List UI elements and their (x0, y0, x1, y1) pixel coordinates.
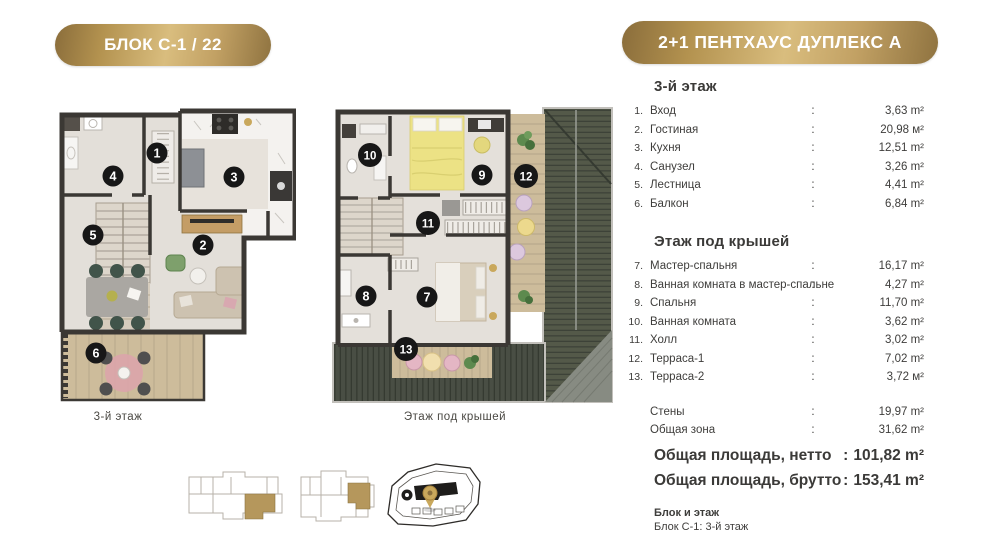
block-number-badge: БЛОК С-1 / 22 (55, 24, 271, 66)
row-number: 2. (624, 121, 650, 140)
row-value: 6,84 m² (818, 195, 924, 214)
area-row: 10.Ванная комната:3,62 m² (624, 313, 924, 332)
site-plan-thumb (378, 456, 487, 533)
row-value: 3,02 m² (818, 331, 924, 350)
room-marker: 6 (86, 343, 107, 364)
row-value: 7,02 m² (818, 350, 924, 369)
row-value: 16,17 m² (818, 257, 924, 276)
area-row: 7.Мастер-спальня:16,17 m² (624, 257, 924, 276)
row-label: Холл (650, 331, 808, 350)
row-colon: : (808, 368, 818, 387)
area-row: 5.Лестница:4,41 m² (624, 176, 924, 195)
row-label: Спальня (650, 294, 808, 313)
block-footer-value: Блок С-1: 3-й этаж (654, 520, 924, 535)
highlighted-unit (245, 494, 275, 519)
desk-chair (474, 137, 490, 153)
toilet (347, 159, 357, 173)
rack (388, 258, 418, 271)
area-row: 12.Терраса-1:7,02 m² (624, 350, 924, 369)
row-colon: : (808, 139, 818, 158)
room-marker: 13 (394, 337, 418, 361)
tv-console (182, 215, 242, 233)
row-label: Стены (650, 403, 808, 422)
floorplan-3rd-floor: 1 2 3 4 5 6 (56, 95, 296, 420)
svg-text:7: 7 (424, 291, 431, 305)
row-colon: : (808, 403, 818, 422)
row-value: 4,27 m² (818, 276, 924, 295)
row-number: 8. (624, 276, 650, 295)
row-number: 3. (624, 139, 650, 158)
sink (340, 270, 351, 296)
svg-text:4: 4 (110, 170, 117, 184)
row-colon: : (808, 313, 818, 332)
row-value: 19,97 m² (818, 403, 924, 422)
summary: Стены:19,97 m² Общая зона:31,62 m² (624, 403, 924, 440)
row-colon: : (808, 294, 818, 313)
area-row: 2.Гостиная:20,98 м² (624, 121, 924, 140)
room-marker: 11 (416, 211, 440, 235)
area-row: 3.Кухня:12,51 m² (624, 139, 924, 158)
coffee-table (190, 268, 206, 284)
total-label: Общая площадь, нетто (624, 443, 843, 469)
row-colon: : (808, 158, 818, 177)
kettle (244, 118, 252, 126)
area-info-panel: 3-й этаж 1.Вход:3,63 m² 2.Гостиная:20,98… (624, 78, 924, 535)
row-colon: : (843, 468, 853, 494)
total-net-row: Общая площадь, нетто:101,82 m² (624, 443, 924, 469)
svg-text:5: 5 (90, 229, 97, 243)
room-marker: 4 (103, 166, 124, 187)
penthouse-plan-page: БЛОК С-1 / 22 2+1 ПЕНТХАУС ДУПЛЕКС А (0, 0, 1000, 540)
block-footer-title: Блок и этаж (654, 506, 924, 521)
floorplan-attic: 7 8 9 10 11 12 13 (330, 100, 615, 405)
bath-shelf (64, 117, 80, 131)
hall-rug (442, 200, 460, 216)
balcony-table (118, 367, 130, 379)
row-label: Кухня (650, 139, 808, 158)
row-colon: : (808, 276, 818, 295)
row-value: 3,63 m² (818, 102, 924, 121)
row-number: 7. (624, 257, 650, 276)
area-row: 1.Вход:3,63 m² (624, 102, 924, 121)
lamp (489, 312, 497, 320)
bath-vanity (64, 137, 78, 169)
row-number: 10. (624, 313, 650, 332)
building-plan-thumb-2 (296, 465, 378, 527)
row-colon: : (808, 421, 818, 440)
area-row: 8.Ванная комната в мастер-спальне:4,27 m… (624, 276, 924, 295)
room-marker: 5 (83, 225, 104, 246)
row-label: Ванная комната (650, 313, 808, 332)
summary-row: Стены:19,97 m² (624, 403, 924, 422)
terrace-table (423, 353, 441, 371)
row-colon: : (808, 350, 818, 369)
room-marker: 3 (224, 167, 245, 188)
area-row: 13.Терраса-2:3,72 м² (624, 368, 924, 387)
svg-text:10: 10 (364, 151, 377, 163)
row-colon: : (808, 331, 818, 350)
svg-text:6: 6 (93, 347, 100, 361)
area-row: 9.Спальня:11,70 m² (624, 294, 924, 313)
washer (84, 117, 102, 130)
row-value: 20,98 м² (818, 121, 924, 140)
terrace-chair (444, 355, 460, 371)
svg-text:3: 3 (231, 171, 238, 185)
terrace-chair (516, 195, 532, 211)
highlighted-unit (348, 483, 370, 509)
totals: Общая площадь, нетто:101,82 m² Общая пло… (624, 443, 924, 494)
row-label: Балкон (650, 195, 808, 214)
section-title-attic: Этаж под крышей (624, 233, 924, 250)
row-colon: : (808, 257, 818, 276)
total-gross-row: Общая площадь, брутто:153,41 m² (624, 468, 924, 494)
wardrobe (463, 200, 508, 215)
area-row: 11.Холл:3,02 m² (624, 331, 924, 350)
room-marker: 12 (514, 164, 538, 188)
row-label: Мастер-спальня (650, 257, 808, 276)
row-value: 4,41 m² (818, 176, 924, 195)
total-value: 153,41 m² (853, 468, 924, 494)
row-number-spacer (624, 421, 650, 440)
terrace-chair (509, 244, 525, 260)
room-marker: 8 (356, 286, 377, 307)
row-colon: : (808, 121, 818, 140)
room-marker: 1 (147, 143, 168, 164)
area-row: 4.Санузел:3,26 m² (624, 158, 924, 177)
armchair (166, 255, 185, 271)
row-value: 31,62 m² (818, 421, 924, 440)
total-label: Общая площадь, брутто (624, 468, 843, 494)
svg-text:11: 11 (422, 219, 435, 231)
area-row: 6.Балкон:6,84 m² (624, 195, 924, 214)
bath-shelf (360, 124, 386, 134)
row-label: Лестница (650, 176, 808, 195)
row-number: 9. (624, 294, 650, 313)
wardrobe (445, 220, 508, 235)
row-number: 1. (624, 102, 650, 121)
area-list-floor3: 1.Вход:3,63 m² 2.Гостиная:20,98 м² 3.Кух… (624, 102, 924, 213)
row-number: 4. (624, 158, 650, 177)
row-value: 11,70 m² (818, 294, 924, 313)
unit-type-badge: 2+1 ПЕНТХАУС ДУПЛЕКС А (622, 21, 938, 64)
row-label: Общая зона (650, 421, 808, 440)
row-colon: : (808, 102, 818, 121)
section-title-3rd-floor: 3-й этаж (624, 78, 924, 95)
row-value: 3,72 м² (818, 368, 924, 387)
terrace-table (518, 219, 535, 236)
row-value: 3,26 m² (818, 158, 924, 177)
block-footer: Блок и этаж Блок С-1: 3-й этаж (624, 506, 924, 535)
row-colon: : (843, 443, 853, 469)
svg-text:2: 2 (200, 239, 207, 253)
room-marker: 9 (472, 165, 493, 186)
row-label: Гостиная (650, 121, 808, 140)
row-number: 13. (624, 368, 650, 387)
plan-caption-3rd-floor: 3-й этаж (58, 411, 178, 423)
row-label: Терраса-1 (650, 350, 808, 369)
room-marker: 2 (193, 235, 214, 256)
row-number: 11. (624, 331, 650, 350)
row-number: 6. (624, 195, 650, 214)
summary-row: Общая зона:31,62 m² (624, 421, 924, 440)
total-value: 101,82 m² (853, 443, 924, 469)
row-label: Санузел (650, 158, 808, 177)
building-plan-thumb-1 (183, 467, 292, 528)
row-number: 5. (624, 176, 650, 195)
row-number-spacer (624, 403, 650, 422)
row-value: 12,51 m² (818, 139, 924, 158)
row-value: 3,62 m² (818, 313, 924, 332)
plan-caption-attic: Этаж под крышей (385, 411, 525, 423)
svg-text:13: 13 (400, 345, 413, 357)
row-colon: : (808, 176, 818, 195)
svg-text:1: 1 (154, 147, 161, 161)
lamp (489, 264, 497, 272)
row-label: Вход (650, 102, 808, 121)
area-list-attic: 7.Мастер-спальня:16,17 m² 8.Ванная комна… (624, 257, 924, 387)
room-marker: 10 (358, 143, 382, 167)
svg-text:8: 8 (363, 290, 370, 304)
row-number: 12. (624, 350, 650, 369)
svg-text:12: 12 (520, 172, 533, 184)
row-label: Ванная комната в мастер-спальне (650, 276, 808, 295)
fridge (180, 149, 204, 187)
row-label: Терраса-2 (650, 368, 808, 387)
svg-text:9: 9 (479, 169, 486, 183)
row-colon: : (808, 195, 818, 214)
shower (342, 124, 356, 138)
room-marker: 7 (417, 287, 438, 308)
stove (212, 114, 238, 134)
